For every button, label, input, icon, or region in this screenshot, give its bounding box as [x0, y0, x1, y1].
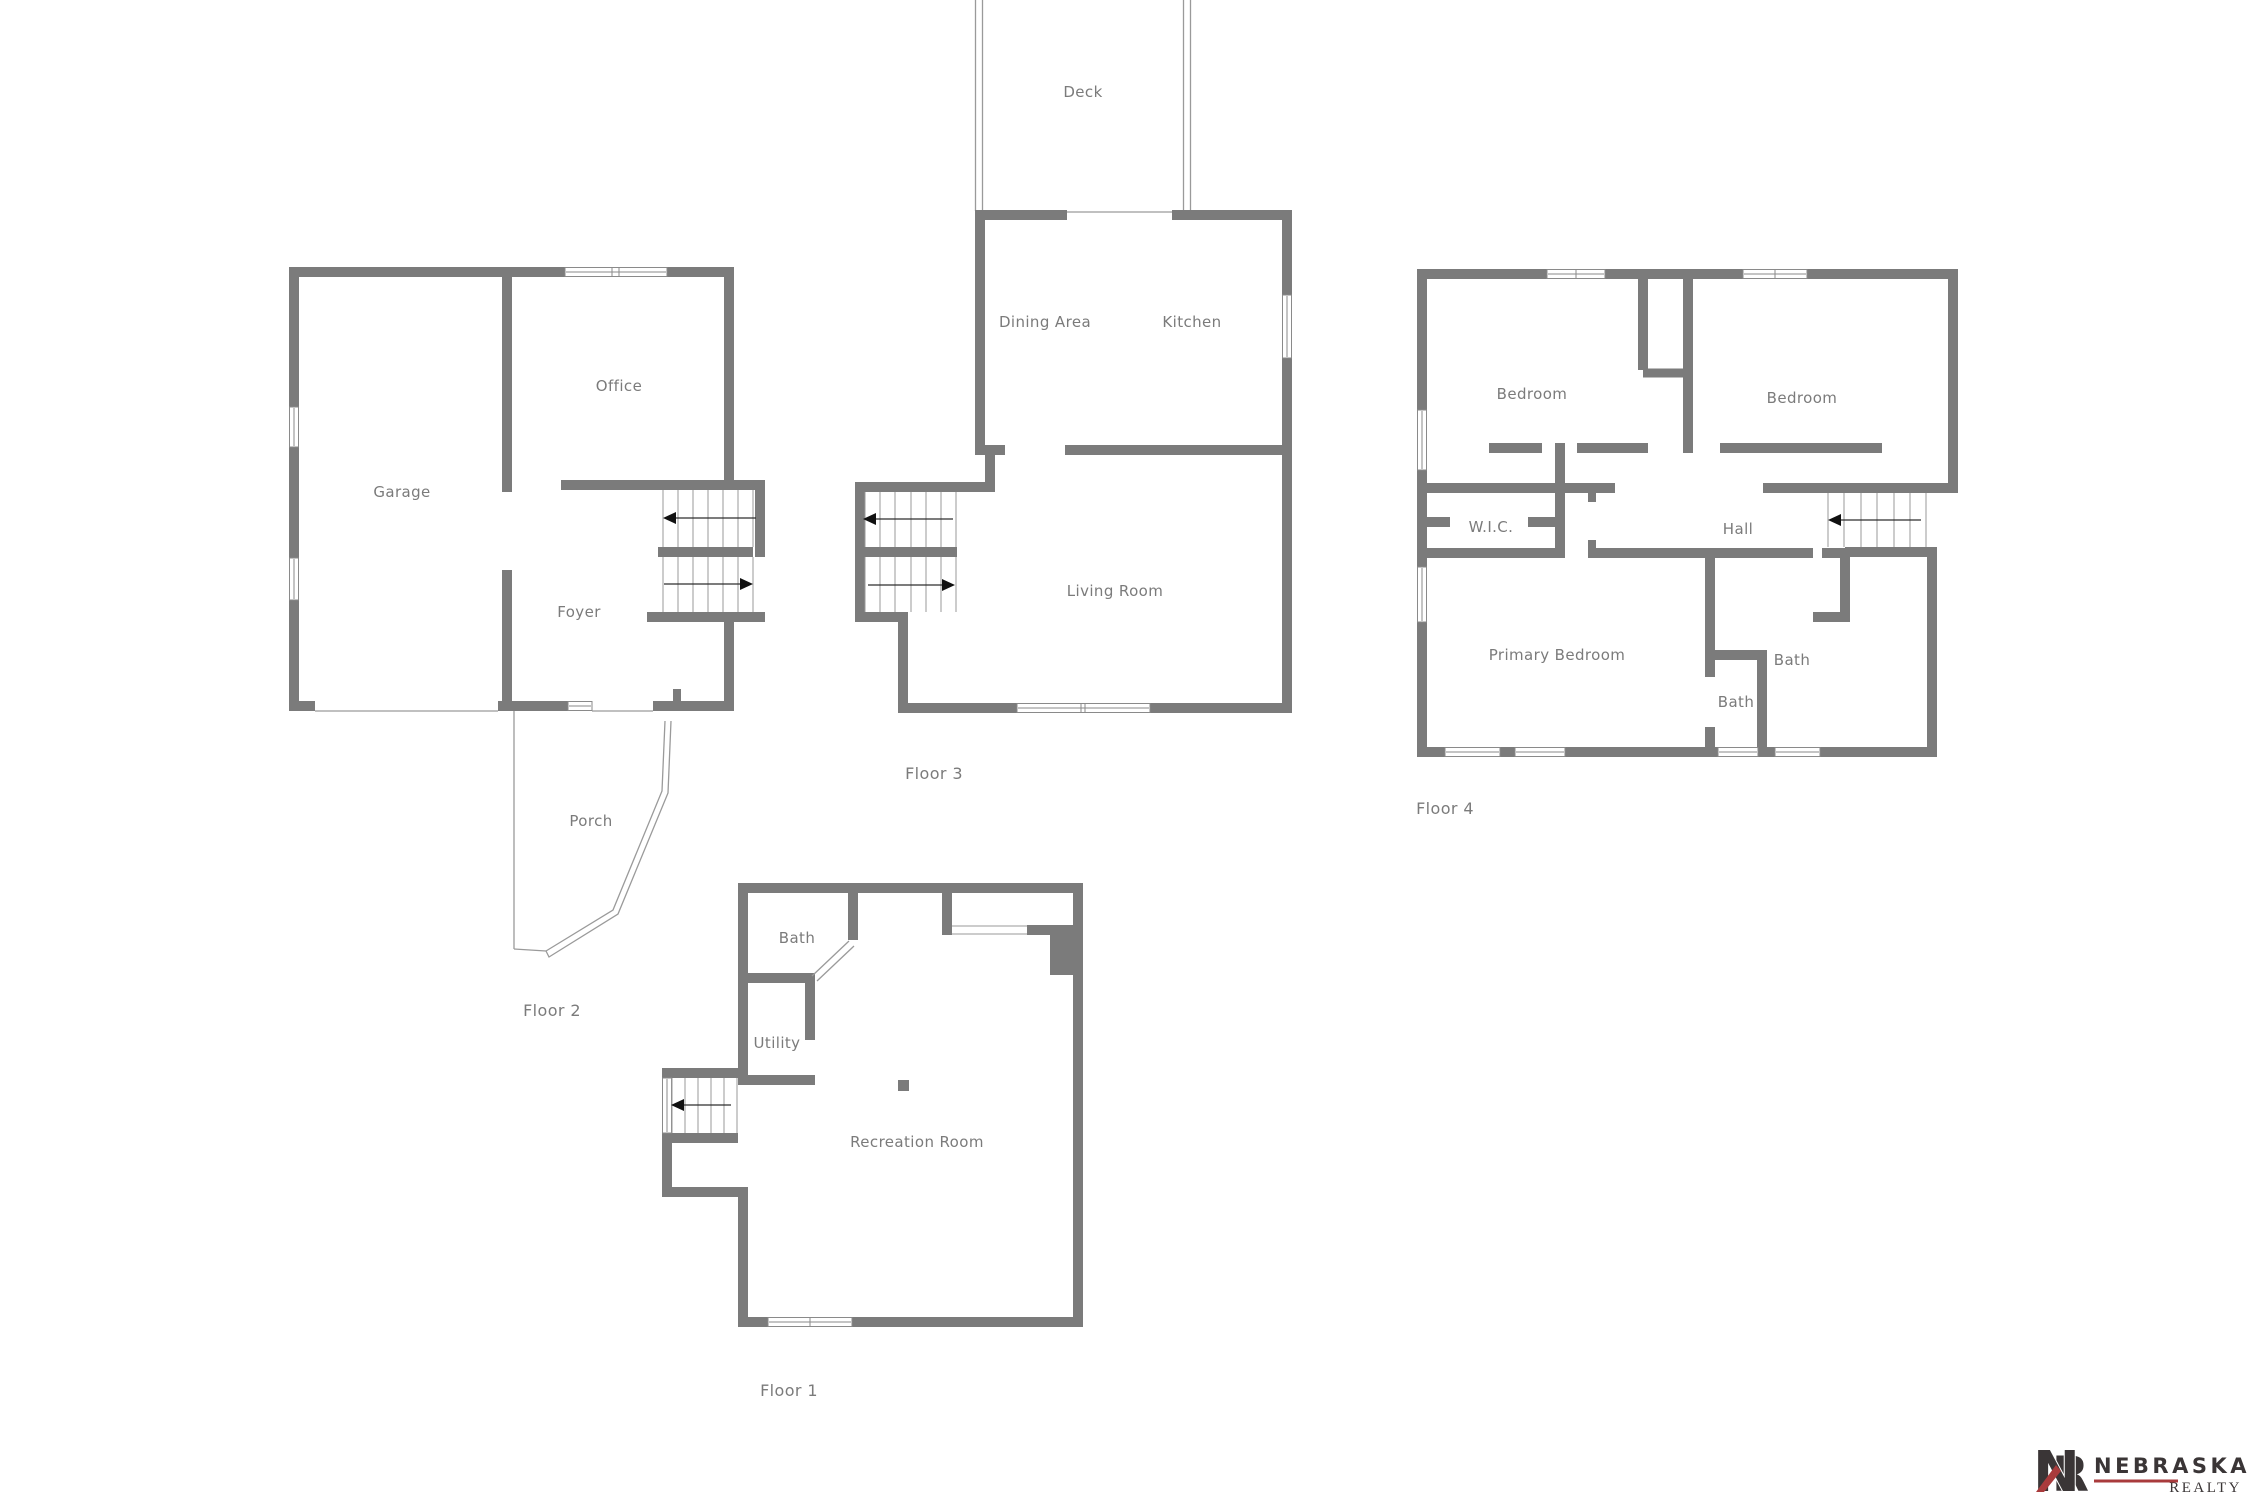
stair-direction-arrow [863, 513, 953, 525]
window [1515, 748, 1565, 757]
floor-2-plan: Garage Office Foyer Porch Floor 2 [289, 267, 765, 1020]
room-label-primary-bedroom: Primary Bedroom [1489, 646, 1626, 664]
room-label-dining-area: Dining Area [999, 313, 1091, 331]
floor-caption: Floor 1 [760, 1381, 818, 1400]
floorplan-canvas: Garage Office Foyer Porch Floor 2 [0, 0, 2250, 1500]
floorplan-page: Garage Office Foyer Porch Floor 2 [0, 0, 2250, 1500]
room-label-bath: Bath [1718, 693, 1754, 711]
room-label-deck: Deck [1063, 83, 1102, 101]
window [1418, 410, 1427, 470]
window [1547, 270, 1605, 279]
window [290, 407, 299, 447]
floor-1-plan: Bath Utility Recreation Room Floor 1 [662, 883, 1083, 1400]
room-label-wic: W.I.C. [1469, 518, 1514, 536]
window [663, 1078, 672, 1133]
room-label-recreation-room: Recreation Room [850, 1133, 984, 1151]
room-label-porch: Porch [569, 812, 612, 830]
closet-opening [952, 926, 1027, 934]
deck-railing [976, 0, 1191, 211]
bath-door-swing [812, 941, 854, 981]
window [768, 1318, 852, 1327]
window [1283, 295, 1292, 358]
room-label-hall: Hall [1723, 520, 1753, 538]
room-label-kitchen: Kitchen [1162, 313, 1221, 331]
chimney-block [1050, 935, 1078, 975]
floor-caption: Floor 3 [905, 764, 963, 783]
room-label-bedroom: Bedroom [1497, 385, 1568, 403]
room-label-living-room: Living Room [1067, 582, 1163, 600]
support-post [898, 1080, 909, 1091]
stair-direction-arrow [671, 1099, 731, 1111]
stair-direction-arrow [1828, 514, 1921, 526]
room-label-bedroom: Bedroom [1767, 389, 1838, 407]
logo-division: REALTY [2169, 1480, 2242, 1496]
floor-4-plan: Bedroom Bedroom W.I.C. Hall Primary Bedr… [1416, 269, 1958, 818]
floor-caption: Floor 4 [1416, 799, 1474, 818]
floor-caption: Floor 2 [523, 1001, 581, 1020]
logo-brand-name: NEBRASKA [2094, 1454, 2250, 1478]
room-label-foyer: Foyer [557, 603, 601, 621]
room-label-utility: Utility [754, 1034, 801, 1052]
room-label-office: Office [596, 377, 642, 395]
window [1418, 567, 1427, 622]
floor-2-walls [289, 267, 765, 711]
window [1718, 748, 1758, 757]
room-label-bath: Bath [1774, 651, 1810, 669]
room-label-bath: Bath [779, 929, 815, 947]
window [1743, 270, 1807, 279]
window [565, 268, 667, 277]
floor-3-walls [855, 210, 1292, 713]
window [1445, 748, 1500, 757]
window [1775, 748, 1820, 757]
nebraska-realty-logo: R N NEBRASKA REALTY [2033, 1440, 2250, 1500]
window [568, 702, 592, 711]
window [1017, 704, 1150, 713]
window [290, 558, 299, 600]
room-label-garage: Garage [373, 483, 430, 501]
floor-3-plan: Deck Dining Area Kitchen Living Room Flo… [855, 0, 1292, 783]
staircase [671, 1078, 737, 1133]
staircase [1828, 493, 1926, 547]
stair-direction-arrow [663, 512, 756, 524]
porch-railing [514, 711, 671, 957]
